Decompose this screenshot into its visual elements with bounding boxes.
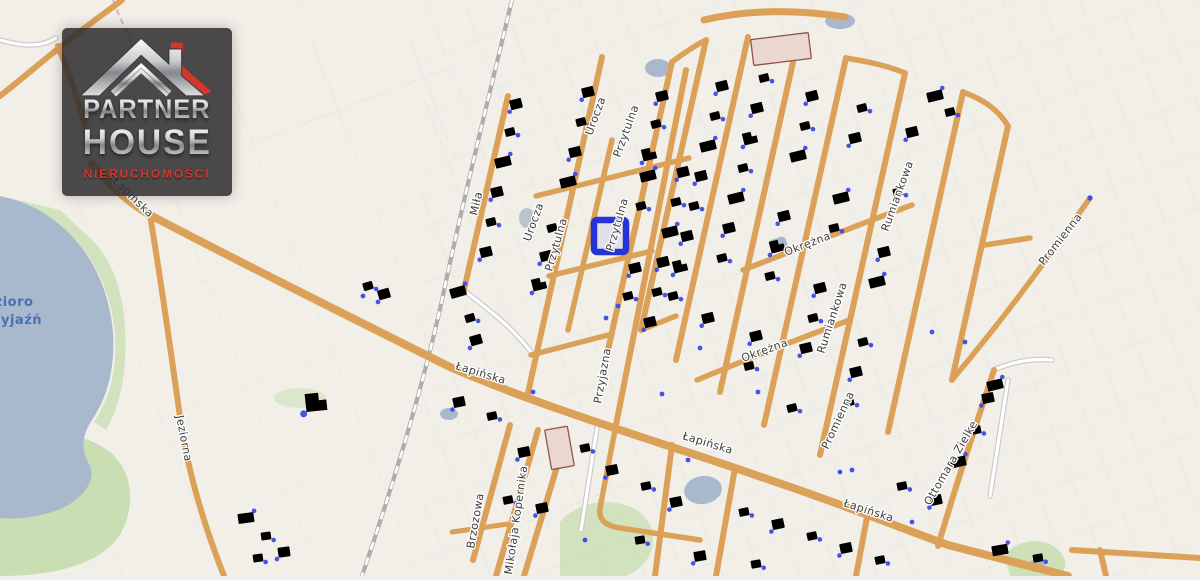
house-roof-icon (72, 34, 222, 98)
logo-text-partner: PARTNER (83, 96, 210, 123)
lake-label-line2: Przyjaźń (0, 313, 42, 328)
partner-house-logo: PARTNER HOUSE NIERUCHOMOŚCI (62, 28, 232, 196)
logo-text-house: HOUSE (82, 125, 211, 160)
logo-text-nieruchomosci: NIERUCHOMOŚCI (84, 167, 211, 181)
lake-label-line1: Jezioro (0, 295, 33, 310)
map-stage: Jezioro Przyjaźń Łapińska Łapińska Łapiń… (0, 0, 1200, 576)
